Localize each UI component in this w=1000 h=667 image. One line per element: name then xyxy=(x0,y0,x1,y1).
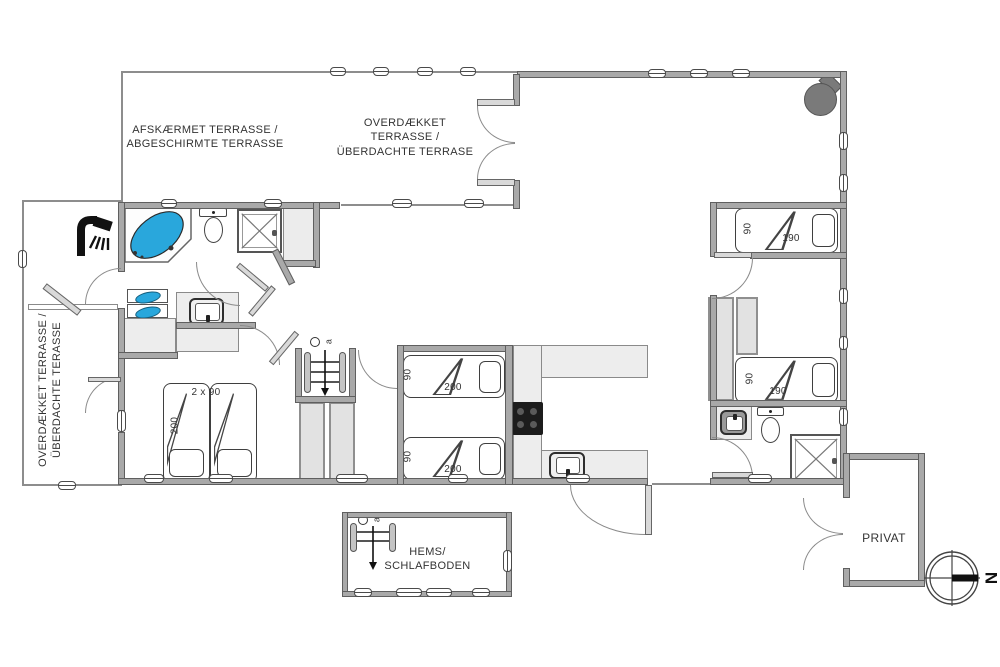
wall xyxy=(118,352,178,359)
floor-plan: a xyxy=(0,0,1000,667)
pillow xyxy=(479,443,501,475)
door-leaf xyxy=(477,99,515,106)
bed-width-label: 90 xyxy=(402,447,415,467)
utility-sink xyxy=(189,298,224,325)
toilet-bowl xyxy=(761,417,780,443)
window xyxy=(330,67,346,76)
door-arc xyxy=(358,350,397,389)
window xyxy=(58,481,76,490)
west-terrace-line2: ÜBERDACHTE TERASSE xyxy=(50,310,64,470)
door-arc xyxy=(570,485,645,535)
toilet-bowl xyxy=(204,217,223,243)
privat-label: PRIVAT xyxy=(850,531,918,547)
window xyxy=(417,67,433,76)
shower-cabin xyxy=(237,209,282,253)
wall xyxy=(710,478,847,485)
compass-north-pointer xyxy=(952,575,978,582)
window xyxy=(460,67,476,76)
pillow xyxy=(479,361,501,393)
cooktop xyxy=(512,402,543,435)
cooktop-burner xyxy=(517,408,524,415)
covered-terrace-line1: OVERDÆKKET xyxy=(330,116,480,130)
wall xyxy=(342,512,348,597)
ladder-letter-marker: a xyxy=(324,335,335,349)
wall xyxy=(843,453,850,498)
window xyxy=(426,588,452,597)
closet xyxy=(283,203,314,261)
wall xyxy=(843,453,925,460)
door-leaf xyxy=(236,263,269,292)
door-leaf xyxy=(88,377,121,382)
wardrobe xyxy=(299,402,325,483)
bath2-sink-faucet xyxy=(733,414,737,420)
window xyxy=(209,474,233,483)
wardrobe xyxy=(329,402,355,483)
window xyxy=(117,410,126,432)
door-arc xyxy=(803,534,843,570)
compass-rose: N xyxy=(920,548,1000,610)
wardrobe xyxy=(736,297,758,355)
shower-knob xyxy=(832,458,837,464)
window xyxy=(732,69,750,78)
wall xyxy=(313,202,320,268)
ladder-circle-marker xyxy=(310,337,320,347)
door-arc xyxy=(85,268,121,304)
wall xyxy=(750,252,847,259)
bed-length-label: 200 xyxy=(169,411,182,441)
shower-icon xyxy=(74,214,118,258)
wall xyxy=(710,202,847,209)
wall xyxy=(295,396,356,403)
screened-terrace-label: AFSKÆRMET TERRASSE / ABGESCHIRMTE TERRAS… xyxy=(105,123,305,152)
wall xyxy=(710,202,717,257)
window xyxy=(392,199,412,208)
window xyxy=(648,69,666,78)
covered-terrace-label: OVERDÆKKET TERRASSE / ÜBERDACHTE TERRASE xyxy=(330,116,480,159)
shower-cabin xyxy=(790,434,842,484)
west-terrace-label: OVERDÆKKET TERRASSE / ÜBERDACHTE TERASSE xyxy=(36,310,68,470)
ladder-down-arrow xyxy=(320,350,330,396)
door-leaf xyxy=(712,472,753,478)
utility-sink-faucet xyxy=(206,315,210,322)
window xyxy=(336,474,368,483)
pillow xyxy=(169,449,204,477)
window xyxy=(839,288,848,304)
window xyxy=(839,336,848,350)
door-leaf xyxy=(477,179,515,186)
wall xyxy=(710,400,847,407)
wall xyxy=(349,348,356,403)
bath2-sink xyxy=(720,410,747,435)
window xyxy=(839,408,848,426)
bed-width-label: 90 xyxy=(402,365,415,385)
wall xyxy=(710,403,717,440)
gas-stove-burner-2 xyxy=(127,304,168,318)
wall xyxy=(397,345,513,352)
wall xyxy=(843,568,850,587)
wall xyxy=(295,348,302,403)
ladder-rail xyxy=(304,352,311,393)
wall xyxy=(118,202,125,272)
window xyxy=(464,199,484,208)
window xyxy=(503,550,512,572)
gas-stove-burner-1 xyxy=(127,289,168,303)
window xyxy=(354,588,372,597)
window xyxy=(566,474,590,483)
wall xyxy=(283,260,316,267)
bed-length-label: 190 xyxy=(775,232,807,245)
west-terrace-top-edge xyxy=(22,200,121,202)
cooktop-burner xyxy=(530,408,537,415)
wall xyxy=(517,71,847,78)
door-arc xyxy=(477,143,515,179)
bed-width-label: 2 x 90 xyxy=(176,386,236,399)
wall xyxy=(342,512,512,518)
covered-terrace-line3: ÜBERDACHTE TERRASE xyxy=(330,145,480,159)
wall xyxy=(710,295,717,405)
entry-door-leaf xyxy=(645,485,652,535)
west-terrace-outer-edge xyxy=(22,200,24,486)
hems-line2: SCHLAFBODEN xyxy=(370,559,485,573)
window xyxy=(839,174,848,192)
wall xyxy=(118,202,340,209)
utility-counter xyxy=(124,318,176,354)
window xyxy=(144,474,164,483)
door-arc xyxy=(85,377,121,413)
bed-length-label: 190 xyxy=(762,385,794,398)
screened-terrace-line2: ABGESCHIRMTE TERRASSE xyxy=(105,137,305,151)
bed-length-label: 200 xyxy=(438,381,468,394)
wood-stove xyxy=(804,83,837,116)
window xyxy=(690,69,708,78)
window xyxy=(264,199,282,208)
covered-terrace-line2: TERRASSE / xyxy=(330,130,480,144)
ladder-rail xyxy=(339,352,346,393)
window xyxy=(161,199,177,208)
west-terrace-line1: OVERDÆKKET TERRASSE / xyxy=(36,310,50,470)
hems-label: HEMS/ SCHLAFBODEN xyxy=(370,545,485,574)
door-arc xyxy=(803,498,843,534)
pillow xyxy=(217,449,252,477)
shower-knob xyxy=(272,230,277,236)
compass-north-letter: N xyxy=(982,572,1000,584)
door-arc xyxy=(712,258,753,299)
window xyxy=(18,250,27,268)
toilet-button xyxy=(212,211,215,214)
window xyxy=(373,67,389,76)
pillow xyxy=(812,214,835,247)
window xyxy=(472,588,490,597)
screened-terrace-line1: AFSKÆRMET TERRASSE / xyxy=(105,123,305,137)
hems-line1: HEMS/ xyxy=(370,545,485,559)
wall xyxy=(843,580,925,587)
window-band-north xyxy=(341,204,513,206)
cooktop-burner xyxy=(530,421,537,428)
wall xyxy=(505,345,513,485)
toilet-button xyxy=(769,410,772,413)
bed-width-label: 90 xyxy=(744,369,757,389)
pillow xyxy=(812,363,835,397)
bathtub-graphic xyxy=(124,206,193,264)
window xyxy=(396,588,422,597)
corner-bathtub xyxy=(124,206,193,264)
bed-length-label: 200 xyxy=(438,463,468,476)
door-arc xyxy=(477,106,515,143)
porch-edge-south xyxy=(652,483,710,485)
ladder-rail xyxy=(350,523,357,552)
window xyxy=(748,474,772,483)
window xyxy=(839,132,848,150)
cooktop-burner xyxy=(517,421,524,428)
bed-width-label: 90 xyxy=(742,219,755,239)
door-leaf xyxy=(248,285,276,316)
